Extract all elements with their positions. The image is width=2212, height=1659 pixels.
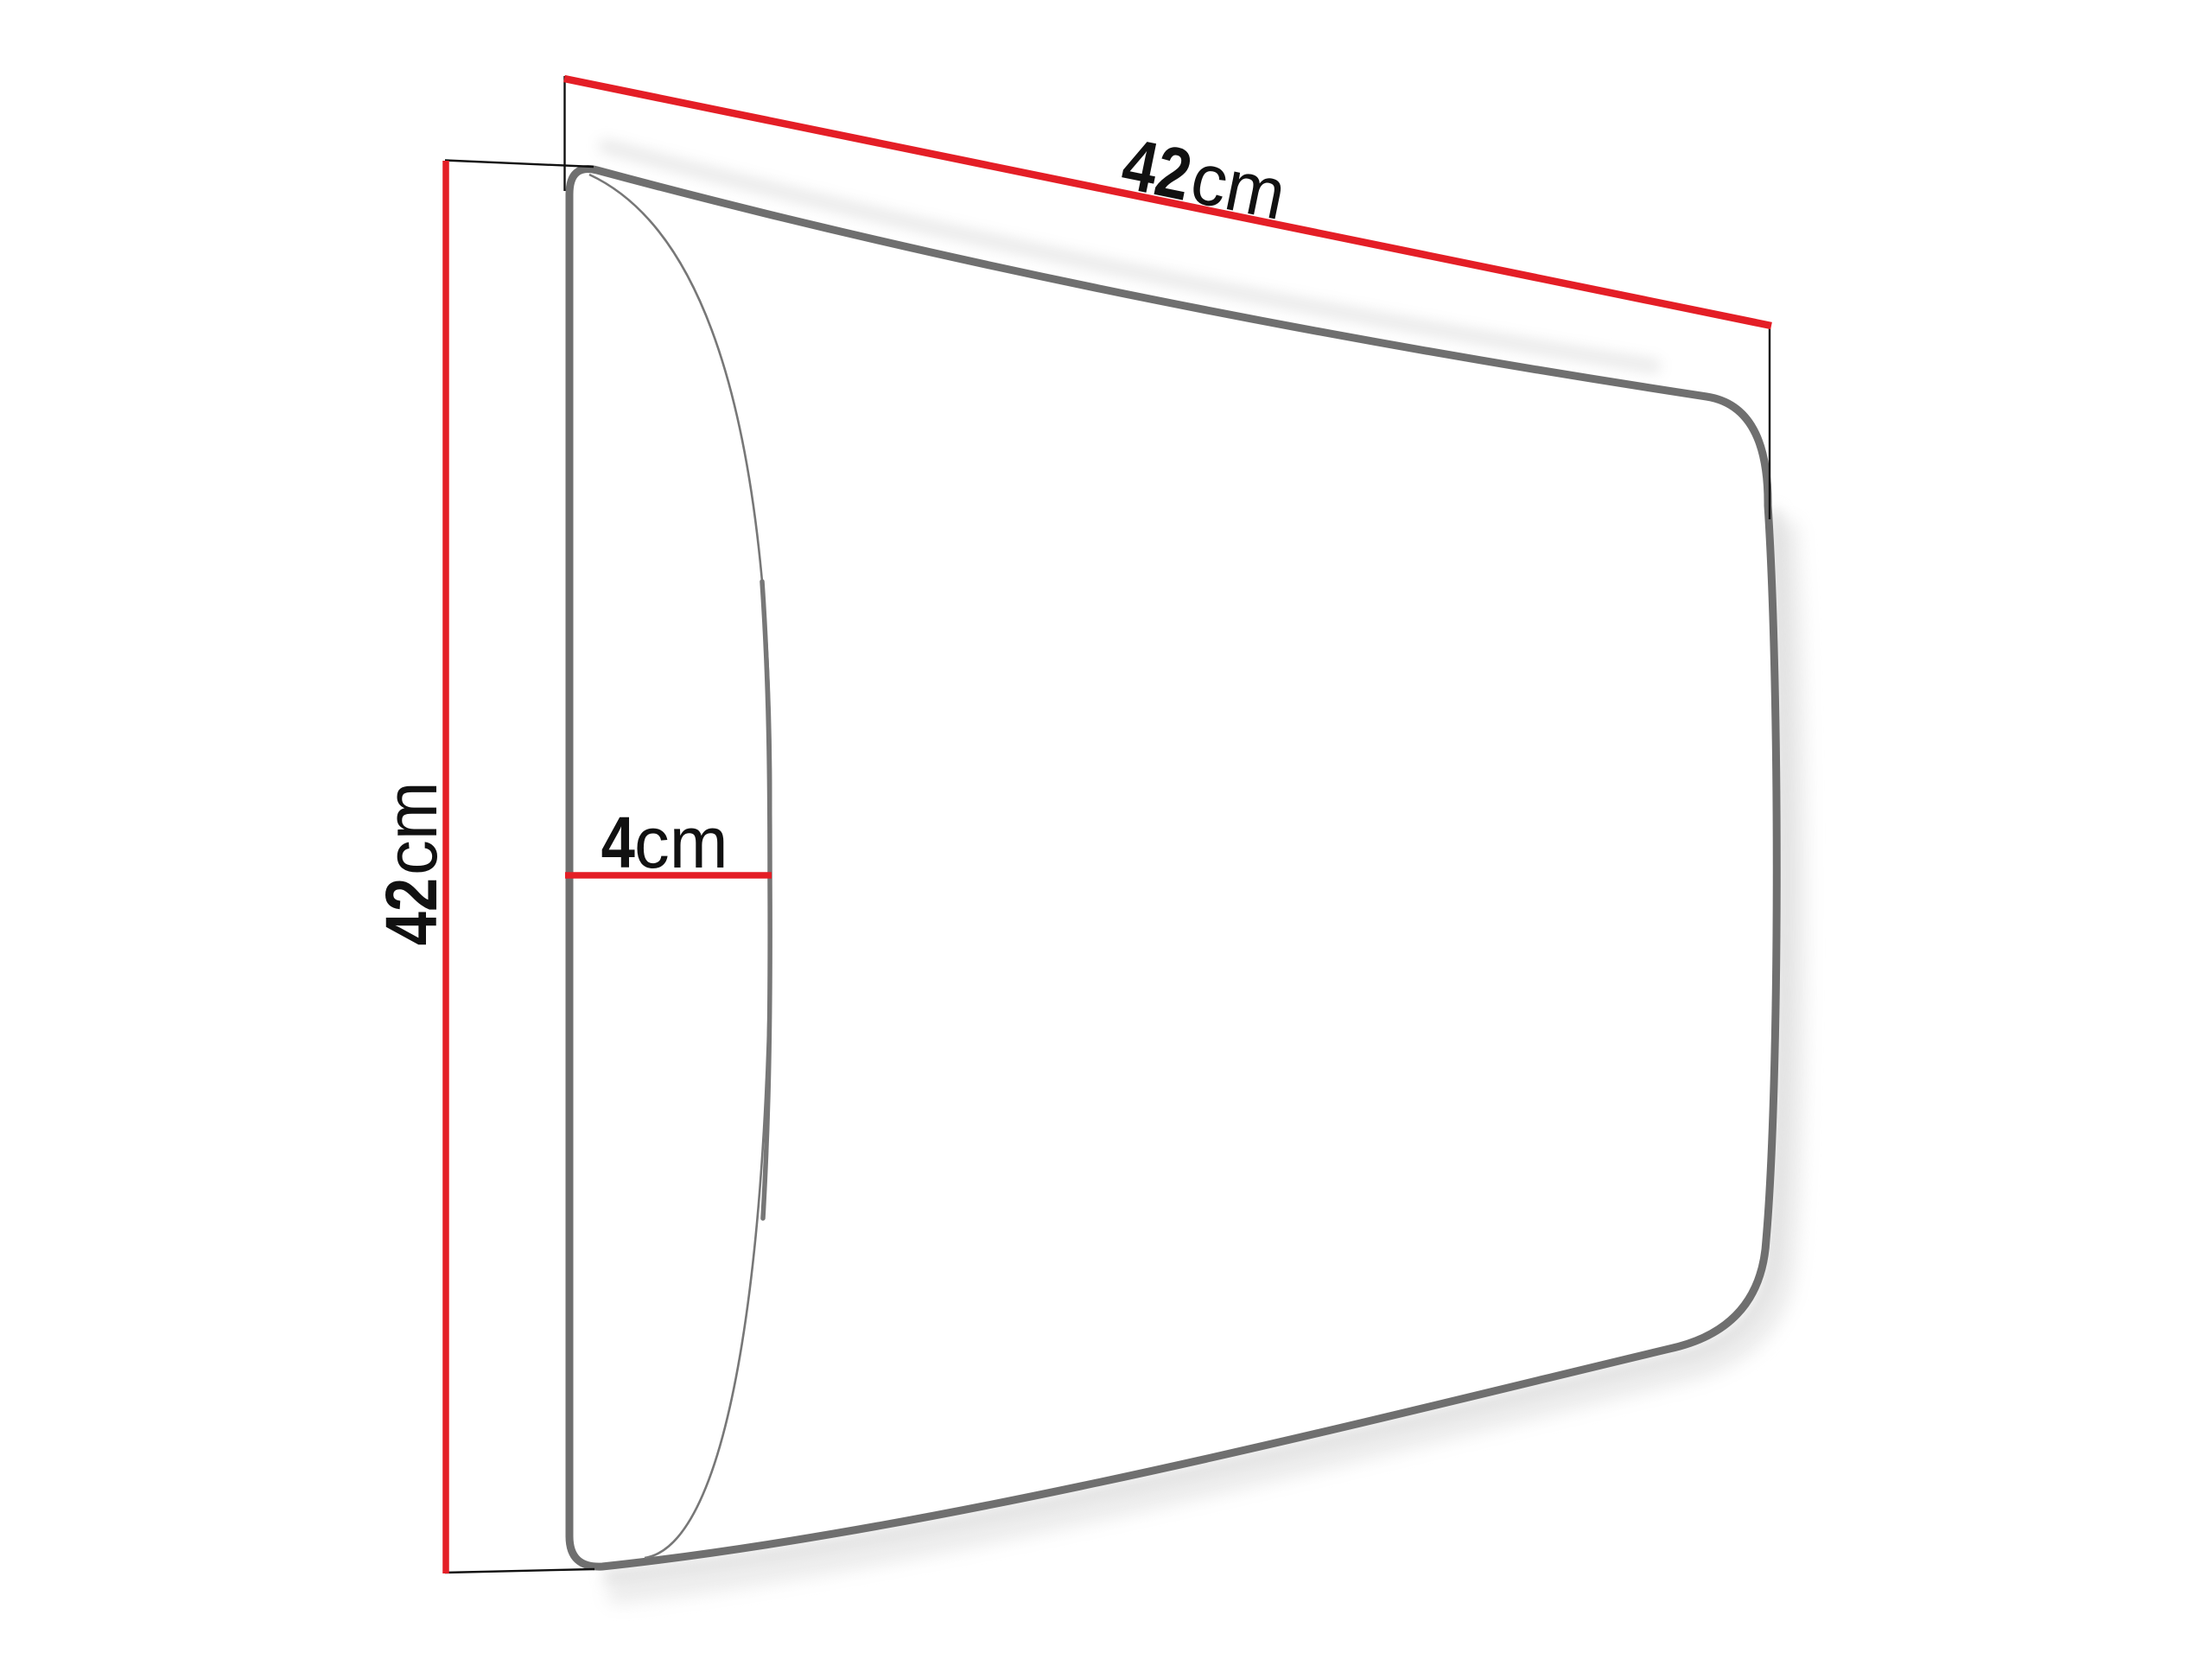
svg-text:cm: cm [371, 781, 452, 875]
svg-text:42: 42 [372, 878, 452, 945]
svg-text:cm: cm [634, 802, 728, 883]
svg-text:4: 4 [601, 803, 635, 883]
